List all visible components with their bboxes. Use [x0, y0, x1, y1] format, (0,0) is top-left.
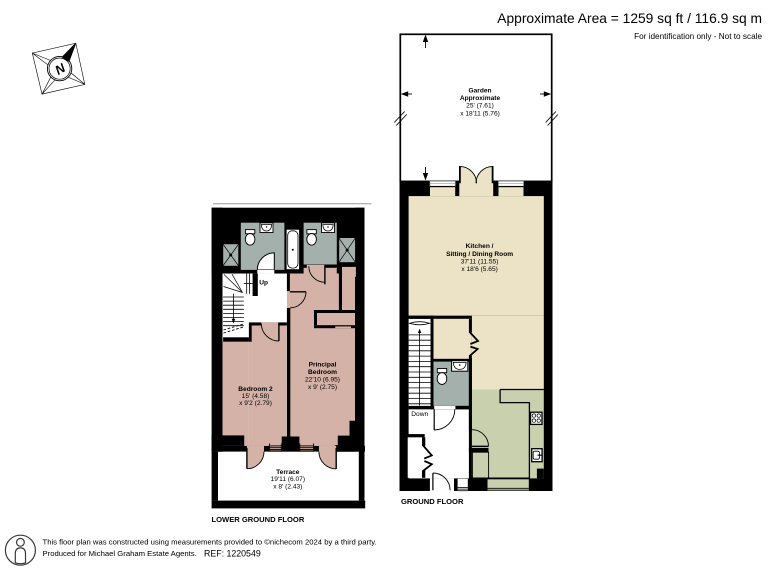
svg-text:Terrace: Terrace [276, 469, 300, 476]
svg-text:x 8' (2.43): x 8' (2.43) [273, 483, 302, 490]
svg-text:Sitting / Dining Room: Sitting / Dining Room [446, 251, 513, 258]
svg-text:Approximate Area = 1259 sq ft: Approximate Area = 1259 sq ft / 116.9 sq… [497, 11, 762, 26]
svg-text:x 18'11 (5.76): x 18'11 (5.76) [460, 110, 500, 117]
svg-text:22'10 (6.95): 22'10 (6.95) [305, 377, 340, 384]
svg-text:37'11 (11.55): 37'11 (11.55) [461, 258, 499, 265]
svg-text:Bedroom: Bedroom [308, 369, 337, 376]
svg-text:For identification only - Not: For identification only - Not to scale [634, 32, 762, 41]
svg-text:x 9' (2.75): x 9' (2.75) [308, 384, 337, 391]
svg-text:REF: 1220549: REF: 1220549 [204, 548, 261, 558]
svg-text:Principal: Principal [309, 361, 337, 368]
svg-text:x 9'2 (2.79): x 9'2 (2.79) [239, 400, 272, 407]
svg-text:Garden: Garden [468, 88, 491, 95]
svg-text:LOWER GROUND FLOOR: LOWER GROUND FLOOR [212, 515, 305, 524]
svg-text:This floor plan was constructe: This floor plan was constructed using me… [43, 538, 377, 547]
svg-text:GROUND FLOOR: GROUND FLOOR [401, 497, 464, 506]
svg-text:Produced for Michael Graham Es: Produced for Michael Graham Estate Agent… [43, 549, 197, 558]
svg-text:Up: Up [259, 280, 268, 287]
svg-text:Approximate: Approximate [460, 95, 501, 102]
svg-text:Down: Down [411, 411, 428, 418]
svg-text:Kitchen /: Kitchen / [466, 243, 494, 250]
svg-text:25' (7.61): 25' (7.61) [466, 103, 494, 110]
svg-text:x 18'6 (5.65): x 18'6 (5.65) [461, 266, 497, 273]
svg-text:19'11 (6.07): 19'11 (6.07) [271, 476, 306, 483]
